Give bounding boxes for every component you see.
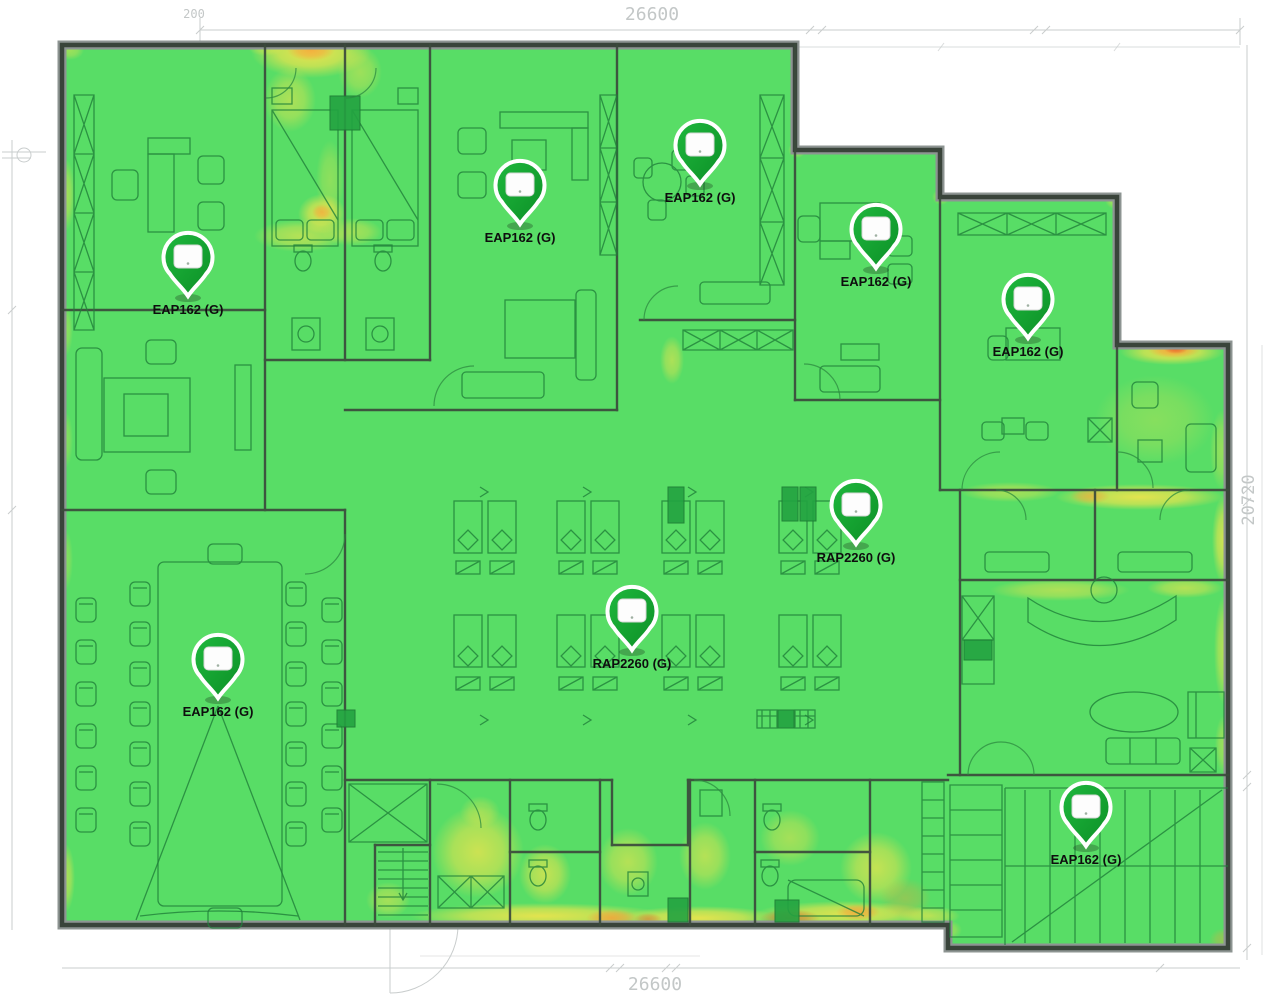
dim-top-left: 200 — [183, 7, 205, 21]
dimension-left — [2, 140, 46, 930]
dim-top-total: 26600 — [625, 4, 679, 25]
ap-label: EAP162 (G) — [1051, 852, 1122, 867]
dimension-right: 20720 — [1239, 45, 1262, 960]
floorplan-canvas: 26600 200 20720 26600 — [0, 0, 1269, 997]
ap-label: RAP2260 (G) — [817, 550, 896, 565]
ap-label: RAP2260 (G) — [593, 656, 672, 671]
ap-label: EAP162 (G) — [665, 190, 736, 205]
ap-label: EAP162 (G) — [153, 302, 224, 317]
exterior-door-swing — [390, 925, 458, 993]
floorplan-svg: 26600 200 20720 26600 — [0, 0, 1269, 997]
ap-label: EAP162 (G) — [183, 704, 254, 719]
dim-right-total: 20720 — [1239, 474, 1259, 525]
dim-bottom-total: 26600 — [628, 974, 682, 995]
dimension-bottom: 26600 — [62, 956, 1240, 995]
ap-label: EAP162 (G) — [993, 344, 1064, 359]
ap-label: EAP162 (G) — [485, 230, 556, 245]
ap-label: EAP162 (G) — [841, 274, 912, 289]
